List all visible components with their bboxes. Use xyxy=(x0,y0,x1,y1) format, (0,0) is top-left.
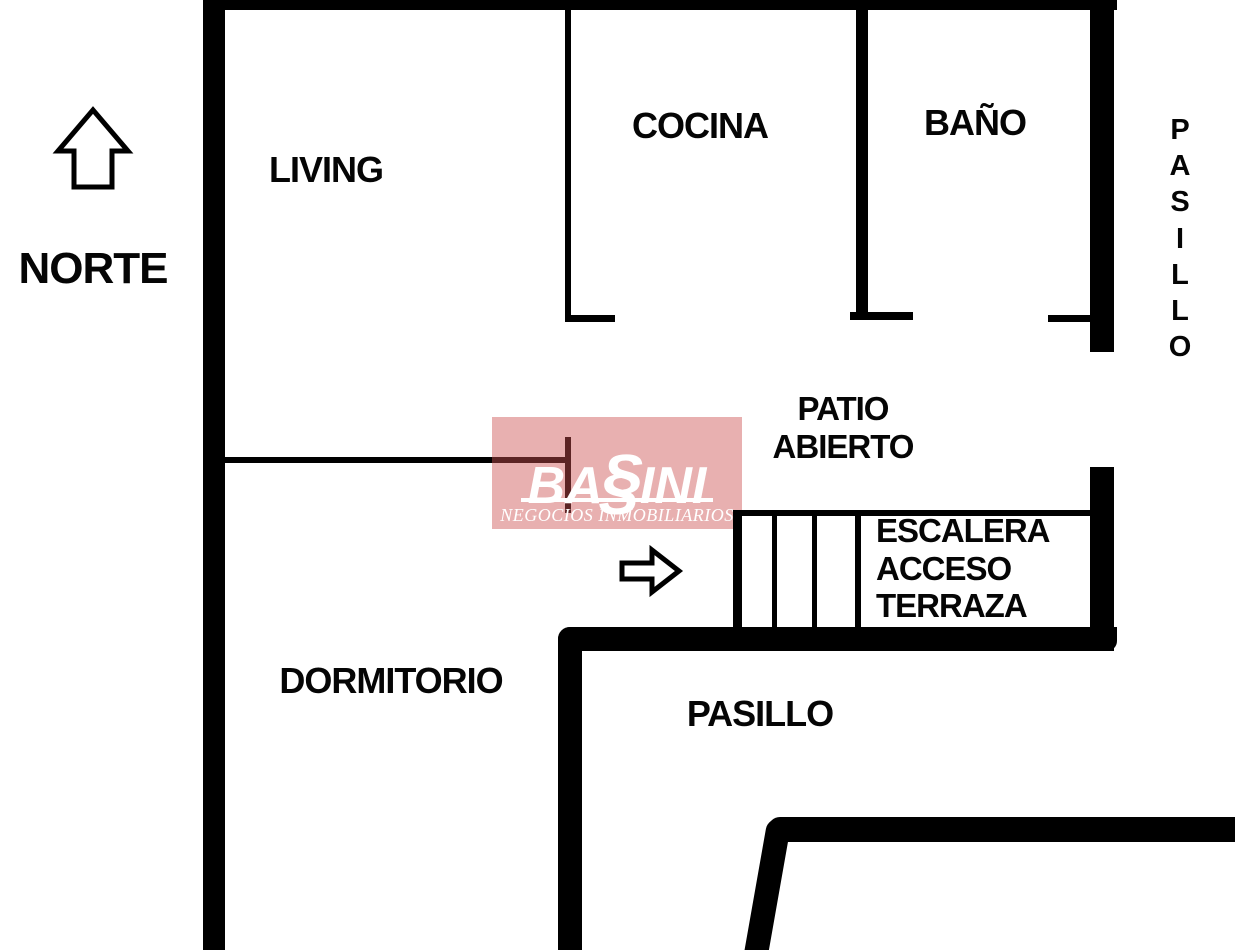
room-label-living: LIVING xyxy=(269,151,383,189)
wall-kitchen-left xyxy=(565,10,571,315)
north-arrow-icon xyxy=(50,103,138,195)
wall-bath-jamb-left xyxy=(850,312,913,320)
wall-kitchen-door-jamb xyxy=(565,315,615,322)
room-label-bedroom: DORMITORIO xyxy=(279,662,502,700)
wall-right-exterior-lower xyxy=(1090,467,1114,651)
brand-logo: BA § INI xyxy=(492,441,742,515)
wall-lower-left-vertical xyxy=(558,627,582,950)
stair-tread-line xyxy=(812,512,817,631)
room-label-hallway-bottom: PASILLO xyxy=(687,695,833,733)
wall-top-exterior xyxy=(203,0,1117,10)
room-label-hallway-right: P A S I L L O xyxy=(1163,112,1197,365)
brand-subtitle: NEGOCIOS INMOBILIARIOS xyxy=(492,505,742,526)
floor-plan: NORTE LIVING COCINA BAÑO P A S I L L O P… xyxy=(0,0,1235,950)
wall-right-exterior-upper xyxy=(1090,0,1114,352)
stair-tread-line xyxy=(772,512,777,631)
stair-tread-line xyxy=(733,510,742,631)
stair-tread-line xyxy=(855,510,861,631)
watermark: BA § INI NEGOCIOS INMOBILIARIOS xyxy=(492,417,742,529)
compass-label: NORTE xyxy=(19,246,168,292)
room-label-stairs-access: ESCALERA ACCESO TERRAZA xyxy=(876,512,1050,625)
wall-lower-room-slanted xyxy=(743,817,792,950)
stairs-direction-arrow-icon xyxy=(617,545,685,599)
wall-lower-room-top xyxy=(768,817,1235,842)
wall-kitchen-bath-divider xyxy=(856,10,868,313)
brand-underline xyxy=(521,498,713,502)
wall-bath-jamb-right xyxy=(1048,315,1090,322)
wall-left-exterior xyxy=(203,0,225,950)
room-label-kitchen: COCINA xyxy=(632,107,768,145)
room-label-bathroom: BAÑO xyxy=(924,104,1026,142)
wall-bottom-thick xyxy=(558,627,1117,651)
room-label-patio: PATIO ABIERTO xyxy=(773,390,914,465)
